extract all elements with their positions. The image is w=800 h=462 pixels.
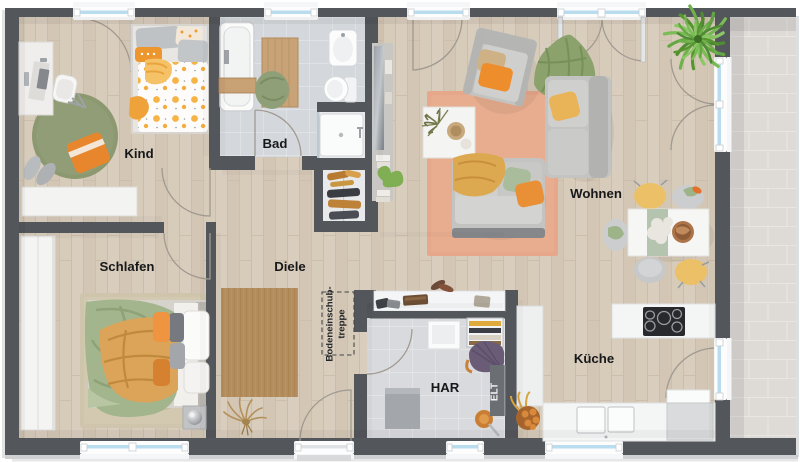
svg-text:Wohnen: Wohnen (570, 186, 622, 201)
svg-text:Bodeneinschub-: Bodeneinschub- (325, 286, 336, 361)
svg-text:Diele: Diele (274, 259, 306, 274)
svg-text:Schlafen: Schlafen (100, 259, 155, 274)
svg-text:ELT: ELT (490, 383, 501, 401)
svg-text:Küche: Küche (574, 351, 614, 366)
svg-text:Kind: Kind (124, 146, 153, 161)
svg-text:HAR: HAR (431, 380, 460, 395)
svg-text:Bad: Bad (263, 136, 288, 151)
svg-text:treppe: treppe (337, 309, 348, 338)
